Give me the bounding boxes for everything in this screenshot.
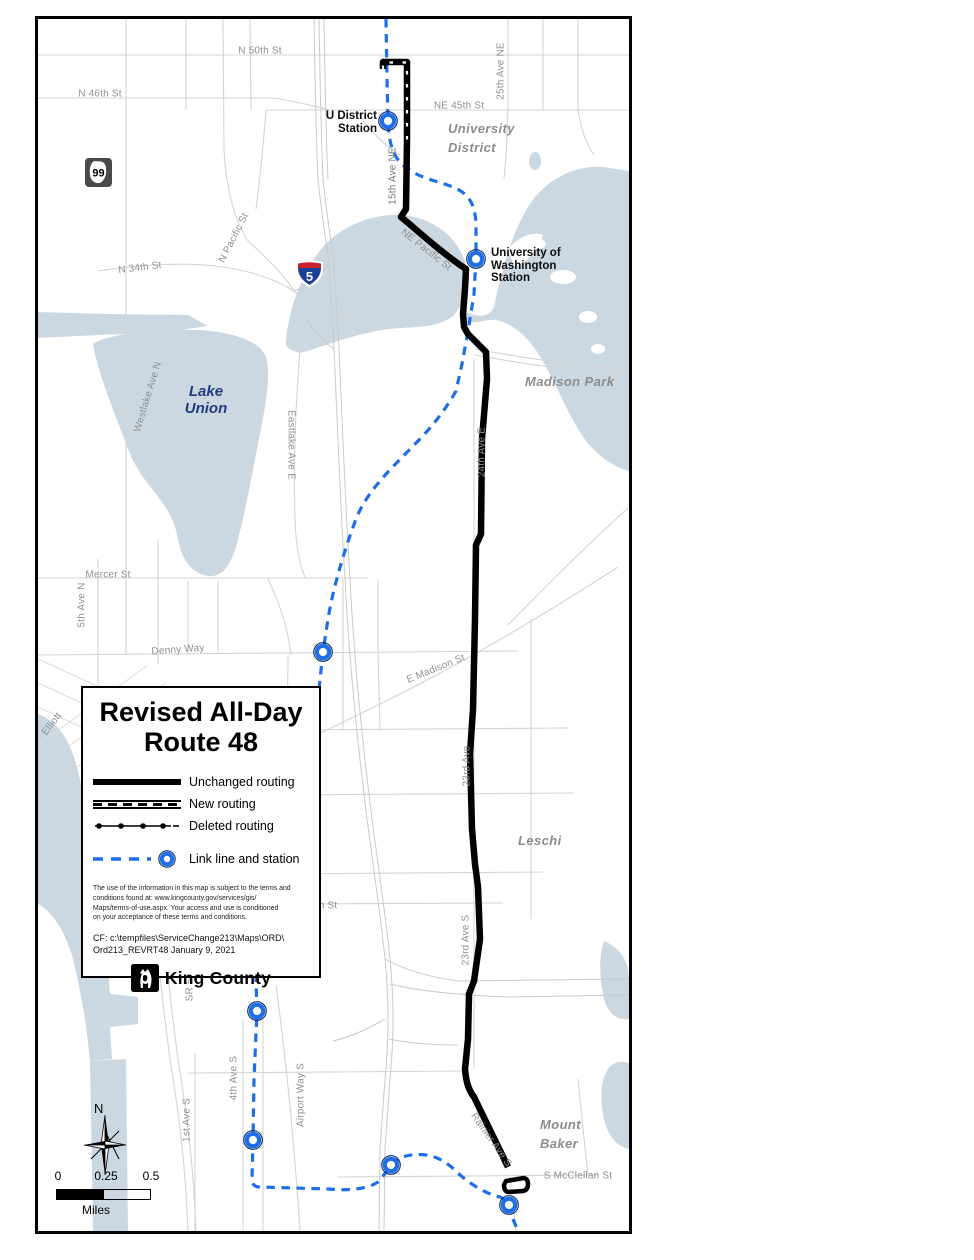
street-label: 23rd Ave S [461, 915, 472, 966]
legend-title: Revised All-Day Route 48 [83, 698, 319, 757]
area-label-university-district: University District [448, 119, 515, 157]
street-label: NE 45th St [434, 101, 484, 112]
legend-disclaimer: The use of the information in this map i… [93, 884, 309, 923]
deleted-routing-swatch [93, 821, 181, 831]
street-label: N 50th St [238, 46, 282, 57]
king-county-logo-text: King County [165, 968, 271, 989]
station-label-uw: University of Washington Station [491, 247, 561, 285]
scale-unit: Miles [82, 1203, 182, 1217]
legend-panel: Revised All-Day Route 48 Unchanged routi… [81, 686, 321, 978]
sr99-shield: 99 [85, 158, 112, 187]
sr99-number: 99 [92, 168, 104, 180]
area-label-madison-park: Madison Park [525, 372, 614, 391]
street-label: 23rd Ave [462, 746, 473, 787]
legend-item-link: Link line and station [93, 848, 319, 870]
street-label: Airport Way S [296, 1063, 307, 1127]
lake-washington-water-2 [601, 1062, 629, 1149]
area-label-mount-baker: Mount Baker [540, 1115, 581, 1153]
street-label: 5th Ave N [77, 583, 88, 628]
street-label: 1st Ave S [182, 1098, 193, 1142]
street-label: 15th Ave NE [388, 147, 399, 205]
union-bay-water [463, 167, 629, 471]
street-label: N 46th St [78, 89, 122, 100]
lake-washington-water-1 [600, 941, 629, 1019]
north-label: N [94, 1101, 103, 1116]
route-terminal-loop [504, 1178, 528, 1192]
street-label: Eastlake Ave E [286, 410, 297, 480]
street-label: 25th Ave NE [496, 42, 507, 100]
legend-item-deleted: Deleted routing [93, 815, 319, 837]
area-label-lake-union: Lake Union [166, 383, 246, 417]
scale-bar-graphic [56, 1189, 151, 1200]
king-county-logo: King County [83, 964, 319, 992]
legend-items: Unchanged routing New routing [93, 771, 319, 870]
lake-union-water [93, 330, 268, 577]
legend-file-reference: CF: c:\tempfiles\ServiceChange213\Maps\O… [93, 933, 309, 956]
pond [529, 152, 541, 170]
street-label: Mercer St [85, 570, 130, 581]
station-label-u-district: U District Station [326, 110, 377, 135]
street-label: 4th Ave S [229, 1056, 240, 1100]
new-routing-swatch [93, 800, 181, 809]
map-graphics: 99 5 [38, 19, 629, 1231]
link-station-marker [382, 115, 394, 127]
legend-item-unchanged: Unchanged routing [93, 771, 319, 793]
map-canvas: 99 5 N 50t [0, 0, 974, 1260]
scale-ticks: 0 0.25 0.5 [52, 1169, 182, 1183]
route-map: 99 5 N 50t [35, 16, 632, 1234]
street-label: S McClellan St [544, 1171, 612, 1182]
street-label: n St [319, 901, 338, 912]
link-line-swatch [93, 849, 181, 869]
king-county-logo-icon [131, 964, 159, 992]
legend-item-new: New routing [93, 793, 319, 815]
scale-bar: 0 0.25 0.5 Miles [52, 1169, 182, 1217]
unchanged-routing-swatch [93, 779, 181, 785]
street-label: 24th Ave E [477, 427, 488, 477]
area-label-leschi: Leschi [518, 831, 562, 850]
i5-number: 5 [306, 269, 313, 284]
